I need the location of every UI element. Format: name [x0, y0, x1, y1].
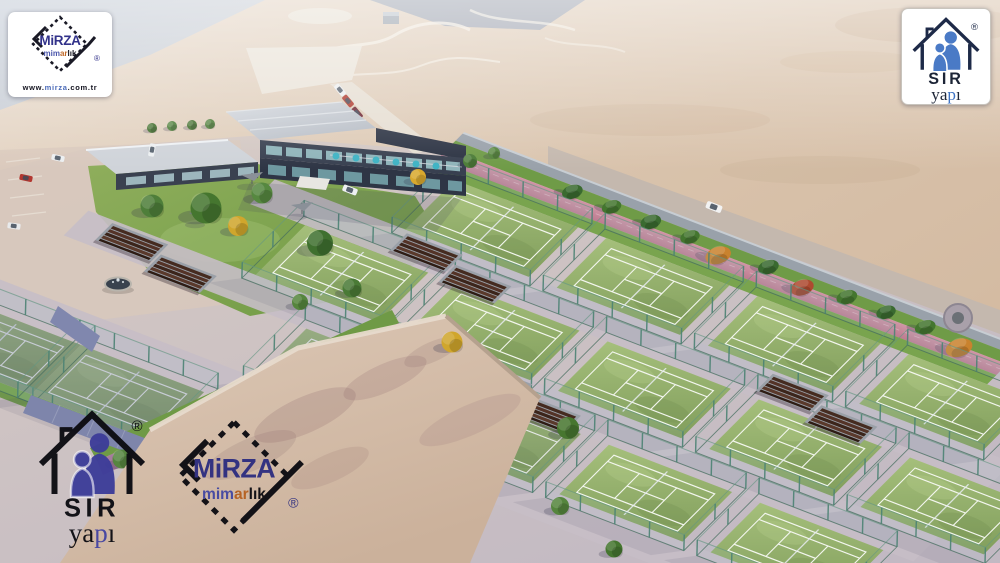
- mirza-website: www.mirza.com.tr: [8, 83, 112, 92]
- yapi-wordmark: yapı: [69, 518, 116, 548]
- mirza-logo: MiRZA mimarlık ®: [160, 414, 308, 544]
- registered-mark: ®: [131, 418, 142, 435]
- corner-plaza: [944, 304, 972, 332]
- sir-yapi-logo-card: ® SIR yapı: [901, 8, 991, 105]
- yapi-wordmark: yapı: [931, 85, 961, 104]
- architectural-render: MiRZA mimarlık ® www.mirza.com.tr ® SIR …: [0, 0, 1000, 563]
- mirza-tagline: mimarlık: [44, 49, 77, 58]
- registered-mark: ®: [971, 22, 978, 33]
- sir-yapi-logo: ® SIR yapı: [26, 398, 158, 548]
- mirza-watermark: MiRZA mimarlık ®: [160, 414, 308, 544]
- website-prefix: www.: [23, 83, 45, 92]
- mirza-wordmark: MiRZA: [39, 33, 81, 48]
- family-figures-icon: [71, 433, 115, 497]
- mirza-logo: MiRZA mimarlık ®: [8, 12, 112, 78]
- mirza-wordmark: MiRZA: [193, 454, 275, 484]
- mirza-logo-card: MiRZA mimarlık ® www.mirza.com.tr: [8, 12, 112, 97]
- sir-yapi-logo: ® SIR yapı: [902, 9, 990, 104]
- registered-mark: ®: [288, 494, 299, 510]
- registered-mark: ®: [94, 54, 100, 63]
- website-suffix: .com.tr: [68, 83, 98, 92]
- family-figures-icon: [933, 31, 961, 71]
- sir-yapi-watermark: ® SIR yapı: [26, 398, 158, 548]
- atmospheric-haze: [0, 0, 1000, 170]
- mirza-tagline: mimarlık: [202, 486, 266, 503]
- fountain: [102, 278, 134, 295]
- website-brand: mirza: [45, 83, 68, 92]
